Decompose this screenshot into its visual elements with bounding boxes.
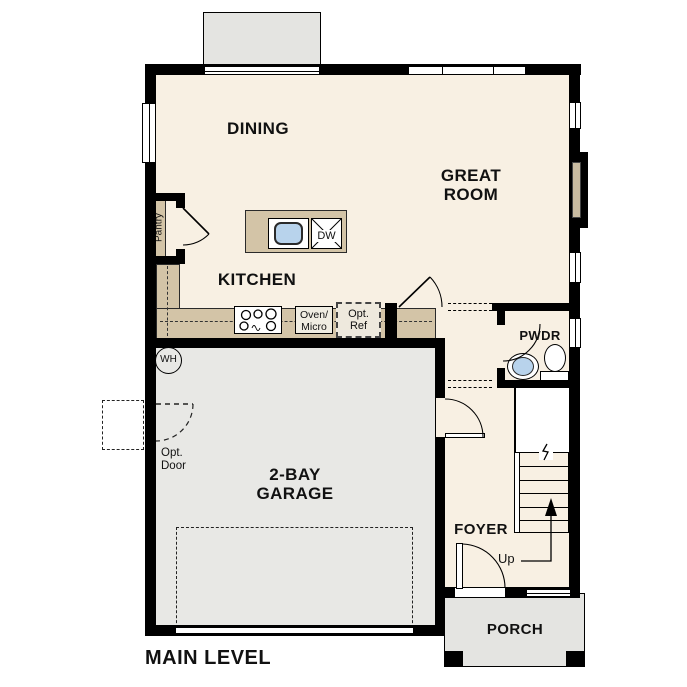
dishwasher-label-wrap: DW (311, 226, 342, 244)
optional-door-stoop (102, 400, 144, 450)
porch-label: PORCH (465, 622, 565, 639)
opt-ref-label-line1: Opt. (348, 308, 369, 320)
porch-post-right (566, 651, 585, 667)
patio-door-window (204, 66, 320, 75)
great-room-label-line2: ROOM (444, 185, 498, 204)
foyer-label: FOYER (450, 522, 512, 539)
dishwasher-label: DW (316, 230, 336, 242)
great-room-window-right-1 (569, 102, 581, 129)
wall-garage-right (435, 338, 445, 636)
floor-plan: Pantry Oven/ Micro Opt. Ref (0, 0, 687, 687)
optional-fridge-box: Opt. Ref (336, 302, 381, 338)
garage-label-line1: 2-BAY (269, 465, 320, 484)
stair-stringer (514, 452, 520, 533)
range-cooktop (234, 306, 282, 334)
garage-door-clearance-dashed (176, 527, 413, 628)
garage-label-line2: GARAGE (256, 484, 333, 503)
front-door-leaf (456, 543, 463, 589)
dining-window-left (142, 103, 156, 163)
foyer-window (526, 589, 571, 597)
garage-label: 2-BAY GARAGE (245, 465, 345, 503)
pantry-jamb-top (176, 193, 185, 208)
water-heater-label: WH (160, 354, 177, 365)
opt-ref-label-line2: Ref (350, 320, 367, 332)
kitchen-label: KITCHEN (207, 270, 307, 289)
great-room-window-right-2 (569, 252, 581, 283)
stairwell-void (516, 388, 569, 452)
stair-treads (519, 452, 569, 533)
up-label: Up (498, 552, 515, 565)
great-room-label: GREAT ROOM (421, 166, 521, 204)
great-room-window-top (408, 66, 526, 75)
fireplace-insert (572, 162, 581, 218)
oven-micro-label-line1: Oven/ (300, 309, 328, 321)
garage-door-opening (176, 627, 413, 634)
powder-label: PWDR (508, 329, 572, 344)
opt-door-label-line1: Opt. (161, 447, 183, 459)
pantry-jamb-bottom (176, 249, 185, 264)
hall-cased-opening-top (448, 303, 492, 311)
patio (203, 12, 321, 68)
plan-title: MAIN LEVEL (145, 647, 365, 669)
wall-hall-stub (385, 303, 397, 348)
garage-entry-door-opening (436, 398, 445, 437)
front-door-opening (455, 588, 505, 597)
toilet-tank (540, 371, 569, 381)
counter-dash-centerline-left (167, 266, 168, 336)
porch-post-left (444, 651, 463, 667)
wall-powder-left-upper (497, 311, 505, 325)
wall-kitchen-garage (145, 338, 445, 348)
kitchen-sink (274, 222, 303, 245)
wall-hall-top (492, 303, 569, 311)
opt-door-label-line2: Door (161, 460, 186, 472)
wall-powder-bottom (497, 380, 580, 388)
toilet-bowl (544, 344, 566, 372)
garage-entry-door-leaf (445, 433, 485, 438)
oven-micro-box: Oven/ Micro (295, 306, 333, 334)
optional-door-label: Opt. Door (161, 447, 186, 473)
powder-sink (512, 357, 534, 376)
dining-label: DINING (208, 119, 308, 138)
hall-cased-opening-bottom (448, 380, 492, 388)
water-heater: WH (155, 347, 182, 374)
great-room-label-line1: GREAT (441, 166, 501, 185)
oven-micro-label-line2: Micro (301, 321, 327, 333)
